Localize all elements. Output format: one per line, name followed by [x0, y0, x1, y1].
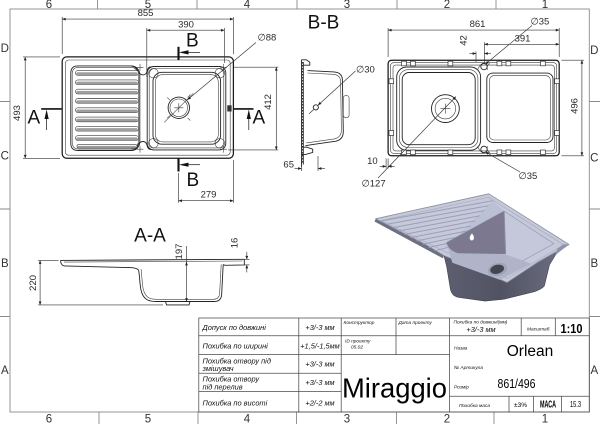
svg-text:16: 16: [230, 238, 241, 249]
svg-text:3: 3: [344, 414, 350, 424]
svg-text:C: C: [1, 151, 9, 163]
svg-text:2: 2: [444, 0, 450, 11]
svg-text:№ Артикула: № Артикула: [454, 365, 483, 371]
svg-text:Дата проекту: Дата проекту: [398, 320, 433, 326]
svg-text:10: 10: [367, 156, 378, 167]
svg-text:6: 6: [46, 414, 52, 424]
svg-text:∅35: ∅35: [531, 17, 550, 28]
svg-text:197: 197: [174, 244, 185, 260]
svg-text:B: B: [186, 31, 199, 52]
svg-text:855: 855: [138, 8, 154, 19]
svg-text:∅35: ∅35: [519, 171, 538, 182]
svg-text:+1,5/-1,5мм: +1,5/-1,5мм: [300, 342, 340, 351]
svg-text:1: 1: [542, 0, 548, 11]
svg-text:+3/-3 мм: +3/-3 мм: [305, 378, 334, 387]
svg-text:C: C: [590, 153, 598, 165]
svg-text:Назва: Назва: [454, 346, 468, 352]
svg-text:+3/-3 мм: +3/-3 мм: [305, 323, 334, 332]
svg-text:Miraggio: Miraggio: [342, 373, 447, 404]
svg-text:ID проекту: ID проекту: [345, 339, 371, 345]
svg-text:+2/-2 мм: +2/-2 мм: [305, 399, 334, 408]
svg-text:A: A: [1, 365, 9, 377]
svg-text:B: B: [590, 258, 598, 270]
svg-text:279: 279: [201, 190, 217, 201]
svg-text:6: 6: [46, 0, 52, 11]
svg-text:A-A: A-A: [134, 226, 166, 247]
svg-text:4: 4: [244, 0, 251, 11]
svg-text:Orlean: Orlean: [507, 343, 554, 360]
svg-text:МАСА: МАСА: [540, 400, 556, 411]
svg-text:861/496: 861/496: [498, 377, 536, 391]
svg-text:±3%: ±3%: [514, 402, 527, 409]
svg-text:861: 861: [470, 19, 486, 30]
svg-text:5: 5: [145, 414, 151, 424]
svg-text:+3/-3 мм: +3/-3 мм: [305, 360, 334, 369]
svg-text:B: B: [1, 258, 9, 270]
svg-text:493: 493: [12, 105, 23, 121]
svg-text:∅30: ∅30: [356, 65, 375, 76]
svg-text:3: 3: [344, 0, 350, 11]
svg-text:Похибка по висоті: Похибка по висоті: [203, 399, 268, 408]
svg-text:1:10: 1:10: [561, 321, 583, 336]
svg-text:B: B: [187, 170, 200, 191]
svg-text:412: 412: [263, 94, 274, 110]
svg-text:D: D: [590, 45, 598, 57]
svg-text:65: 65: [283, 160, 294, 171]
svg-text:змішувач: змішувач: [202, 364, 234, 373]
svg-text:∅88: ∅88: [258, 33, 277, 44]
svg-text:∅127: ∅127: [362, 179, 386, 190]
svg-text:15.3: 15.3: [570, 400, 581, 409]
svg-text:42: 42: [459, 35, 470, 46]
svg-text:220: 220: [28, 275, 39, 291]
svg-text:Масштаб: Масштаб: [527, 327, 550, 333]
svg-text:під перелив: під перелив: [203, 383, 243, 392]
svg-text:Похибка по ширині: Похибка по ширині: [203, 342, 269, 351]
svg-text:Допуск по довжині: Допуск по довжині: [202, 323, 267, 332]
svg-text:05.02: 05.02: [351, 345, 363, 351]
svg-text:Розмір: Розмір: [454, 385, 469, 391]
svg-text:Конструктор: Конструктор: [344, 320, 375, 326]
svg-text:496: 496: [570, 98, 581, 114]
svg-text:2: 2: [444, 414, 450, 424]
svg-text:391: 391: [515, 33, 531, 44]
svg-text:+3/-3 мм: +3/-3 мм: [466, 325, 495, 334]
svg-text:Похибка маса: Похибка маса: [459, 403, 490, 409]
svg-text:D: D: [1, 43, 9, 55]
svg-text:B-B: B-B: [308, 13, 340, 34]
svg-text:A: A: [590, 365, 598, 377]
svg-text:1: 1: [542, 414, 548, 424]
svg-text:4: 4: [244, 414, 251, 424]
svg-text:A: A: [28, 108, 41, 129]
svg-text:390: 390: [178, 19, 194, 30]
